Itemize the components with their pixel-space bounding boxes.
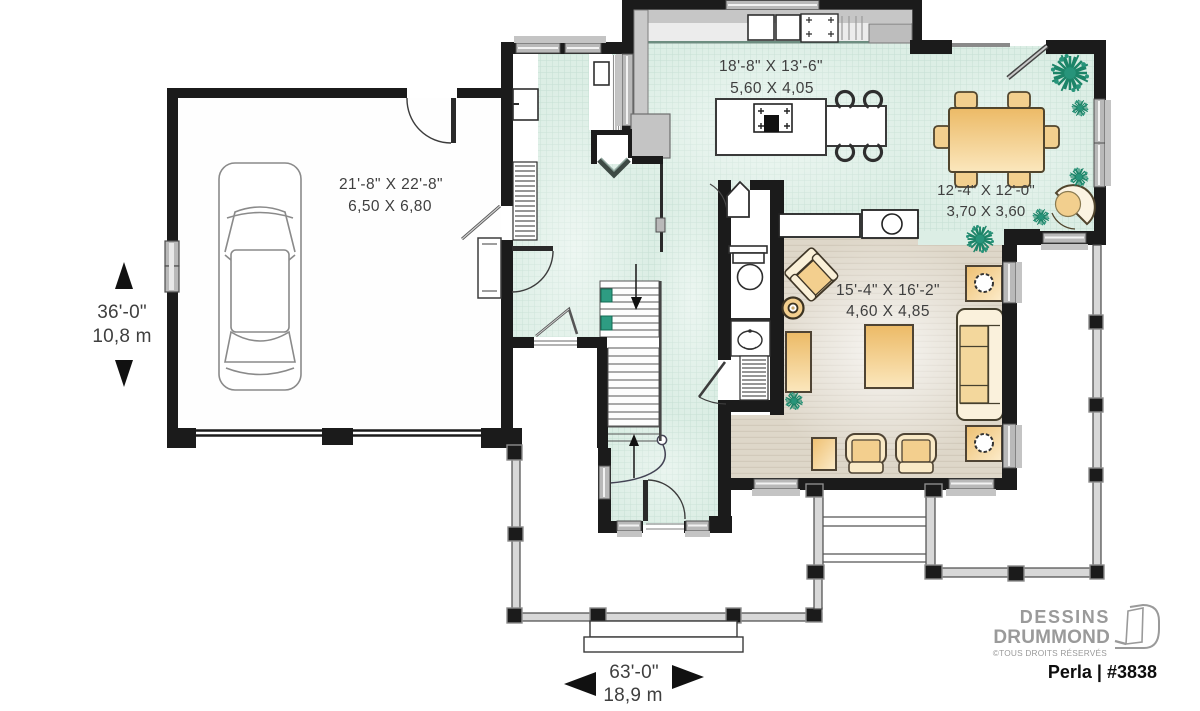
svg-text:18'-8" X 13'-6": 18'-8" X 13'-6"	[719, 58, 823, 75]
svg-text:5,60 X 4,05: 5,60 X 4,05	[730, 80, 814, 97]
svg-text:36'-0": 36'-0"	[97, 302, 147, 323]
svg-text:DRUMMOND: DRUMMOND	[993, 627, 1110, 648]
svg-text:63'-0": 63'-0"	[609, 662, 659, 683]
svg-text:4,60 X 4,85: 4,60 X 4,85	[846, 303, 930, 320]
svg-text:6,50 X 6,80: 6,50 X 6,80	[348, 198, 432, 215]
svg-text:DESSINS: DESSINS	[1020, 607, 1110, 627]
svg-text:10,8 m: 10,8 m	[92, 326, 151, 347]
svg-text:Perla | #3838: Perla | #3838	[1048, 662, 1157, 682]
svg-text:21'-8" X 22'-8": 21'-8" X 22'-8"	[339, 176, 443, 193]
svg-text:18,9 m: 18,9 m	[603, 685, 662, 706]
svg-text:3,70 X 3,60: 3,70 X 3,60	[947, 203, 1026, 220]
svg-text:15'-4" X 16'-2": 15'-4" X 16'-2"	[836, 282, 940, 299]
svg-text:12'-4" X 12'-0": 12'-4" X 12'-0"	[937, 182, 1035, 199]
svg-text:©TOUS DROITS RÉSERVÉS: ©TOUS DROITS RÉSERVÉS	[993, 648, 1107, 658]
